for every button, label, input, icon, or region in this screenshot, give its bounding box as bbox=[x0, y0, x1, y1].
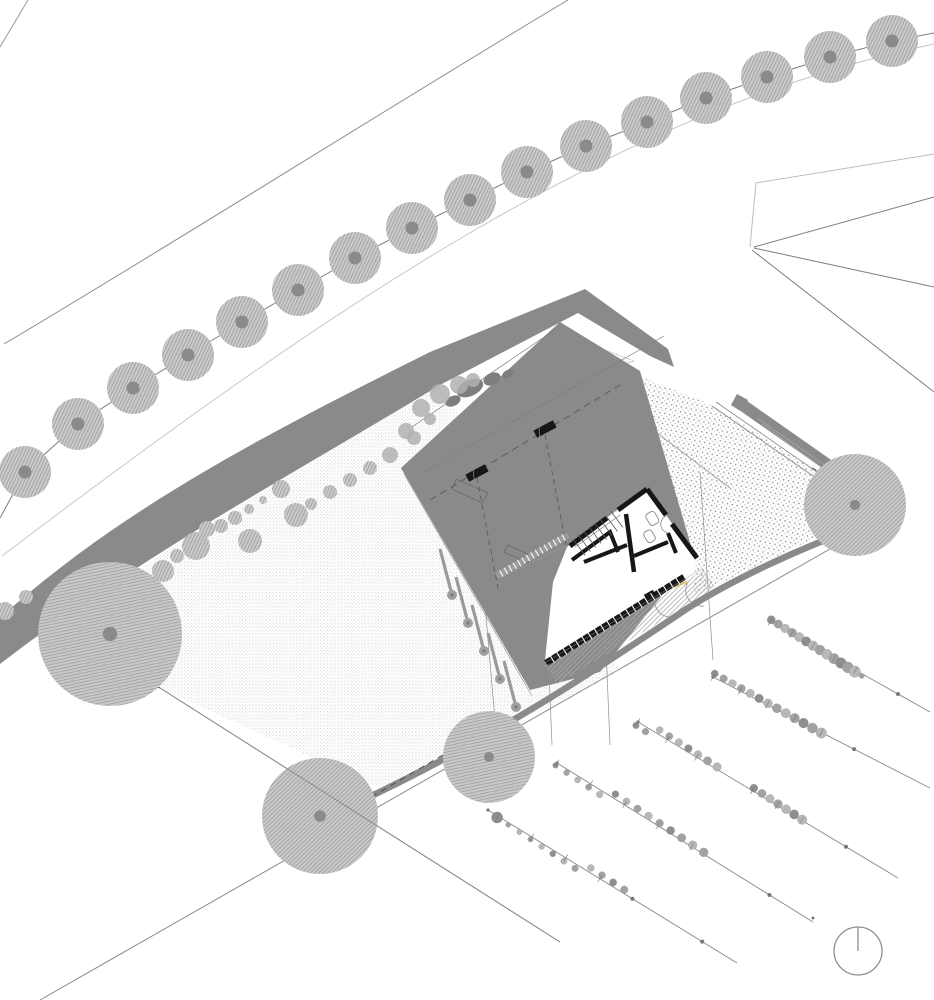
street-tree-trunk-dot bbox=[72, 418, 85, 431]
lawn-tree-trunk-dot bbox=[103, 627, 117, 641]
vine-plant bbox=[596, 791, 603, 798]
street-tree-trunk-dot bbox=[19, 466, 32, 479]
misc-survey-dots bbox=[812, 917, 815, 920]
lawn-tree-trunk-dot bbox=[484, 752, 494, 762]
north-indicator bbox=[834, 927, 882, 975]
vine-plant bbox=[572, 865, 579, 872]
site-plan-drawing bbox=[0, 0, 934, 1000]
street-tree-trunk-dot bbox=[292, 284, 305, 297]
vine-plant bbox=[859, 673, 864, 678]
vine-plant bbox=[790, 810, 799, 819]
vine-row-dot bbox=[767, 893, 771, 897]
vine-plant bbox=[517, 829, 522, 834]
vine-row-dot bbox=[896, 692, 900, 696]
vine-plant bbox=[506, 822, 511, 827]
corner-line-top-left bbox=[0, 0, 28, 47]
street-tree-trunk-dot bbox=[761, 71, 774, 84]
shrub bbox=[407, 431, 421, 445]
column-base-dot bbox=[482, 649, 485, 652]
street-tree-trunk-dot bbox=[464, 194, 477, 207]
street-tree-trunk-dot bbox=[700, 92, 713, 105]
vine-plant bbox=[685, 745, 693, 753]
vine-plant bbox=[755, 694, 764, 703]
shrub bbox=[284, 503, 308, 527]
street-tree-trunk-dot bbox=[580, 140, 593, 153]
vine-row-start-dot bbox=[486, 808, 489, 811]
shrub bbox=[19, 590, 33, 604]
vine-plant bbox=[781, 709, 790, 718]
vine-row-dot bbox=[630, 897, 634, 901]
street-tree-trunk-dot bbox=[886, 35, 899, 48]
street-tree-trunk-dot bbox=[349, 252, 362, 265]
shrub bbox=[170, 549, 184, 563]
vineyard-row bbox=[767, 616, 930, 712]
vine-plant bbox=[713, 763, 721, 771]
shrub bbox=[382, 447, 398, 463]
shrub bbox=[272, 480, 290, 498]
column-base-dot bbox=[498, 677, 501, 680]
vine-plant bbox=[539, 844, 545, 850]
vine-plant bbox=[699, 848, 708, 857]
vine-plant bbox=[550, 851, 556, 857]
vineyard-row bbox=[633, 719, 898, 878]
vine-plant bbox=[729, 680, 737, 688]
shrub bbox=[305, 498, 317, 510]
vine-plant bbox=[799, 718, 809, 728]
vine-plant bbox=[645, 812, 653, 820]
street-tree-trunk-dot bbox=[127, 382, 140, 395]
site-plan-page bbox=[0, 0, 934, 1000]
vine-row-dot bbox=[852, 747, 856, 751]
street-tree-trunk-dot bbox=[236, 316, 249, 329]
shrub bbox=[424, 413, 436, 425]
vine-plant bbox=[656, 727, 663, 734]
vine-row-line bbox=[557, 763, 813, 922]
vineyard-row bbox=[711, 670, 930, 788]
vine-row-dot bbox=[700, 940, 704, 944]
vine-plant bbox=[746, 689, 754, 697]
vine-plant bbox=[598, 872, 605, 879]
shrub bbox=[323, 485, 337, 499]
vine-plant bbox=[575, 777, 581, 783]
survey-dot bbox=[812, 917, 815, 920]
street-tree-trunk-dot bbox=[521, 166, 534, 179]
vine-plant bbox=[634, 805, 641, 812]
vine-plant bbox=[642, 728, 649, 735]
road-junction-dark bbox=[752, 197, 934, 392]
vine-plant bbox=[772, 704, 781, 713]
shrub bbox=[466, 373, 480, 387]
vine-plant bbox=[720, 675, 728, 683]
vine-plant bbox=[587, 865, 594, 872]
road-junction-light bbox=[750, 154, 934, 247]
vine-plant bbox=[620, 886, 628, 894]
vine-plant bbox=[623, 798, 630, 805]
shrub bbox=[244, 504, 254, 514]
vine-plant bbox=[609, 879, 616, 886]
vine-plant bbox=[667, 826, 675, 834]
shrub bbox=[238, 529, 262, 553]
shrub bbox=[199, 521, 215, 537]
shrub bbox=[343, 473, 357, 487]
street-tree-trunk-dot bbox=[182, 349, 195, 362]
shrub bbox=[450, 376, 468, 394]
vine-plant bbox=[612, 791, 619, 798]
street-tree-trunk-dot bbox=[824, 51, 837, 64]
shrub bbox=[228, 511, 242, 525]
vine-plant bbox=[675, 739, 682, 746]
lawn-tree-trunk-dot bbox=[314, 810, 326, 822]
shrub bbox=[363, 461, 377, 475]
street-tree-trunk-dot bbox=[406, 222, 419, 235]
vine-row-dot bbox=[844, 845, 848, 849]
shrub bbox=[430, 384, 450, 404]
vine-plant bbox=[703, 757, 711, 765]
vine-plant bbox=[633, 722, 639, 728]
vine-plant bbox=[758, 789, 766, 797]
vine-row-line bbox=[488, 810, 737, 963]
column-base-dot bbox=[466, 621, 469, 624]
column-base-dot bbox=[514, 705, 517, 708]
vine-plant bbox=[807, 723, 817, 733]
lawn-tree-trunk-dot bbox=[850, 500, 860, 510]
shrub bbox=[214, 519, 228, 533]
vine-plant bbox=[766, 794, 774, 802]
vine-plant bbox=[564, 770, 570, 776]
street-tree-trunk-dot bbox=[641, 116, 654, 129]
vine-plant bbox=[782, 805, 791, 814]
column-base-dot bbox=[450, 593, 453, 596]
shrub bbox=[259, 496, 267, 504]
vineyard-row bbox=[553, 760, 813, 922]
vineyard-row bbox=[486, 808, 737, 963]
vine-plant bbox=[677, 834, 685, 842]
